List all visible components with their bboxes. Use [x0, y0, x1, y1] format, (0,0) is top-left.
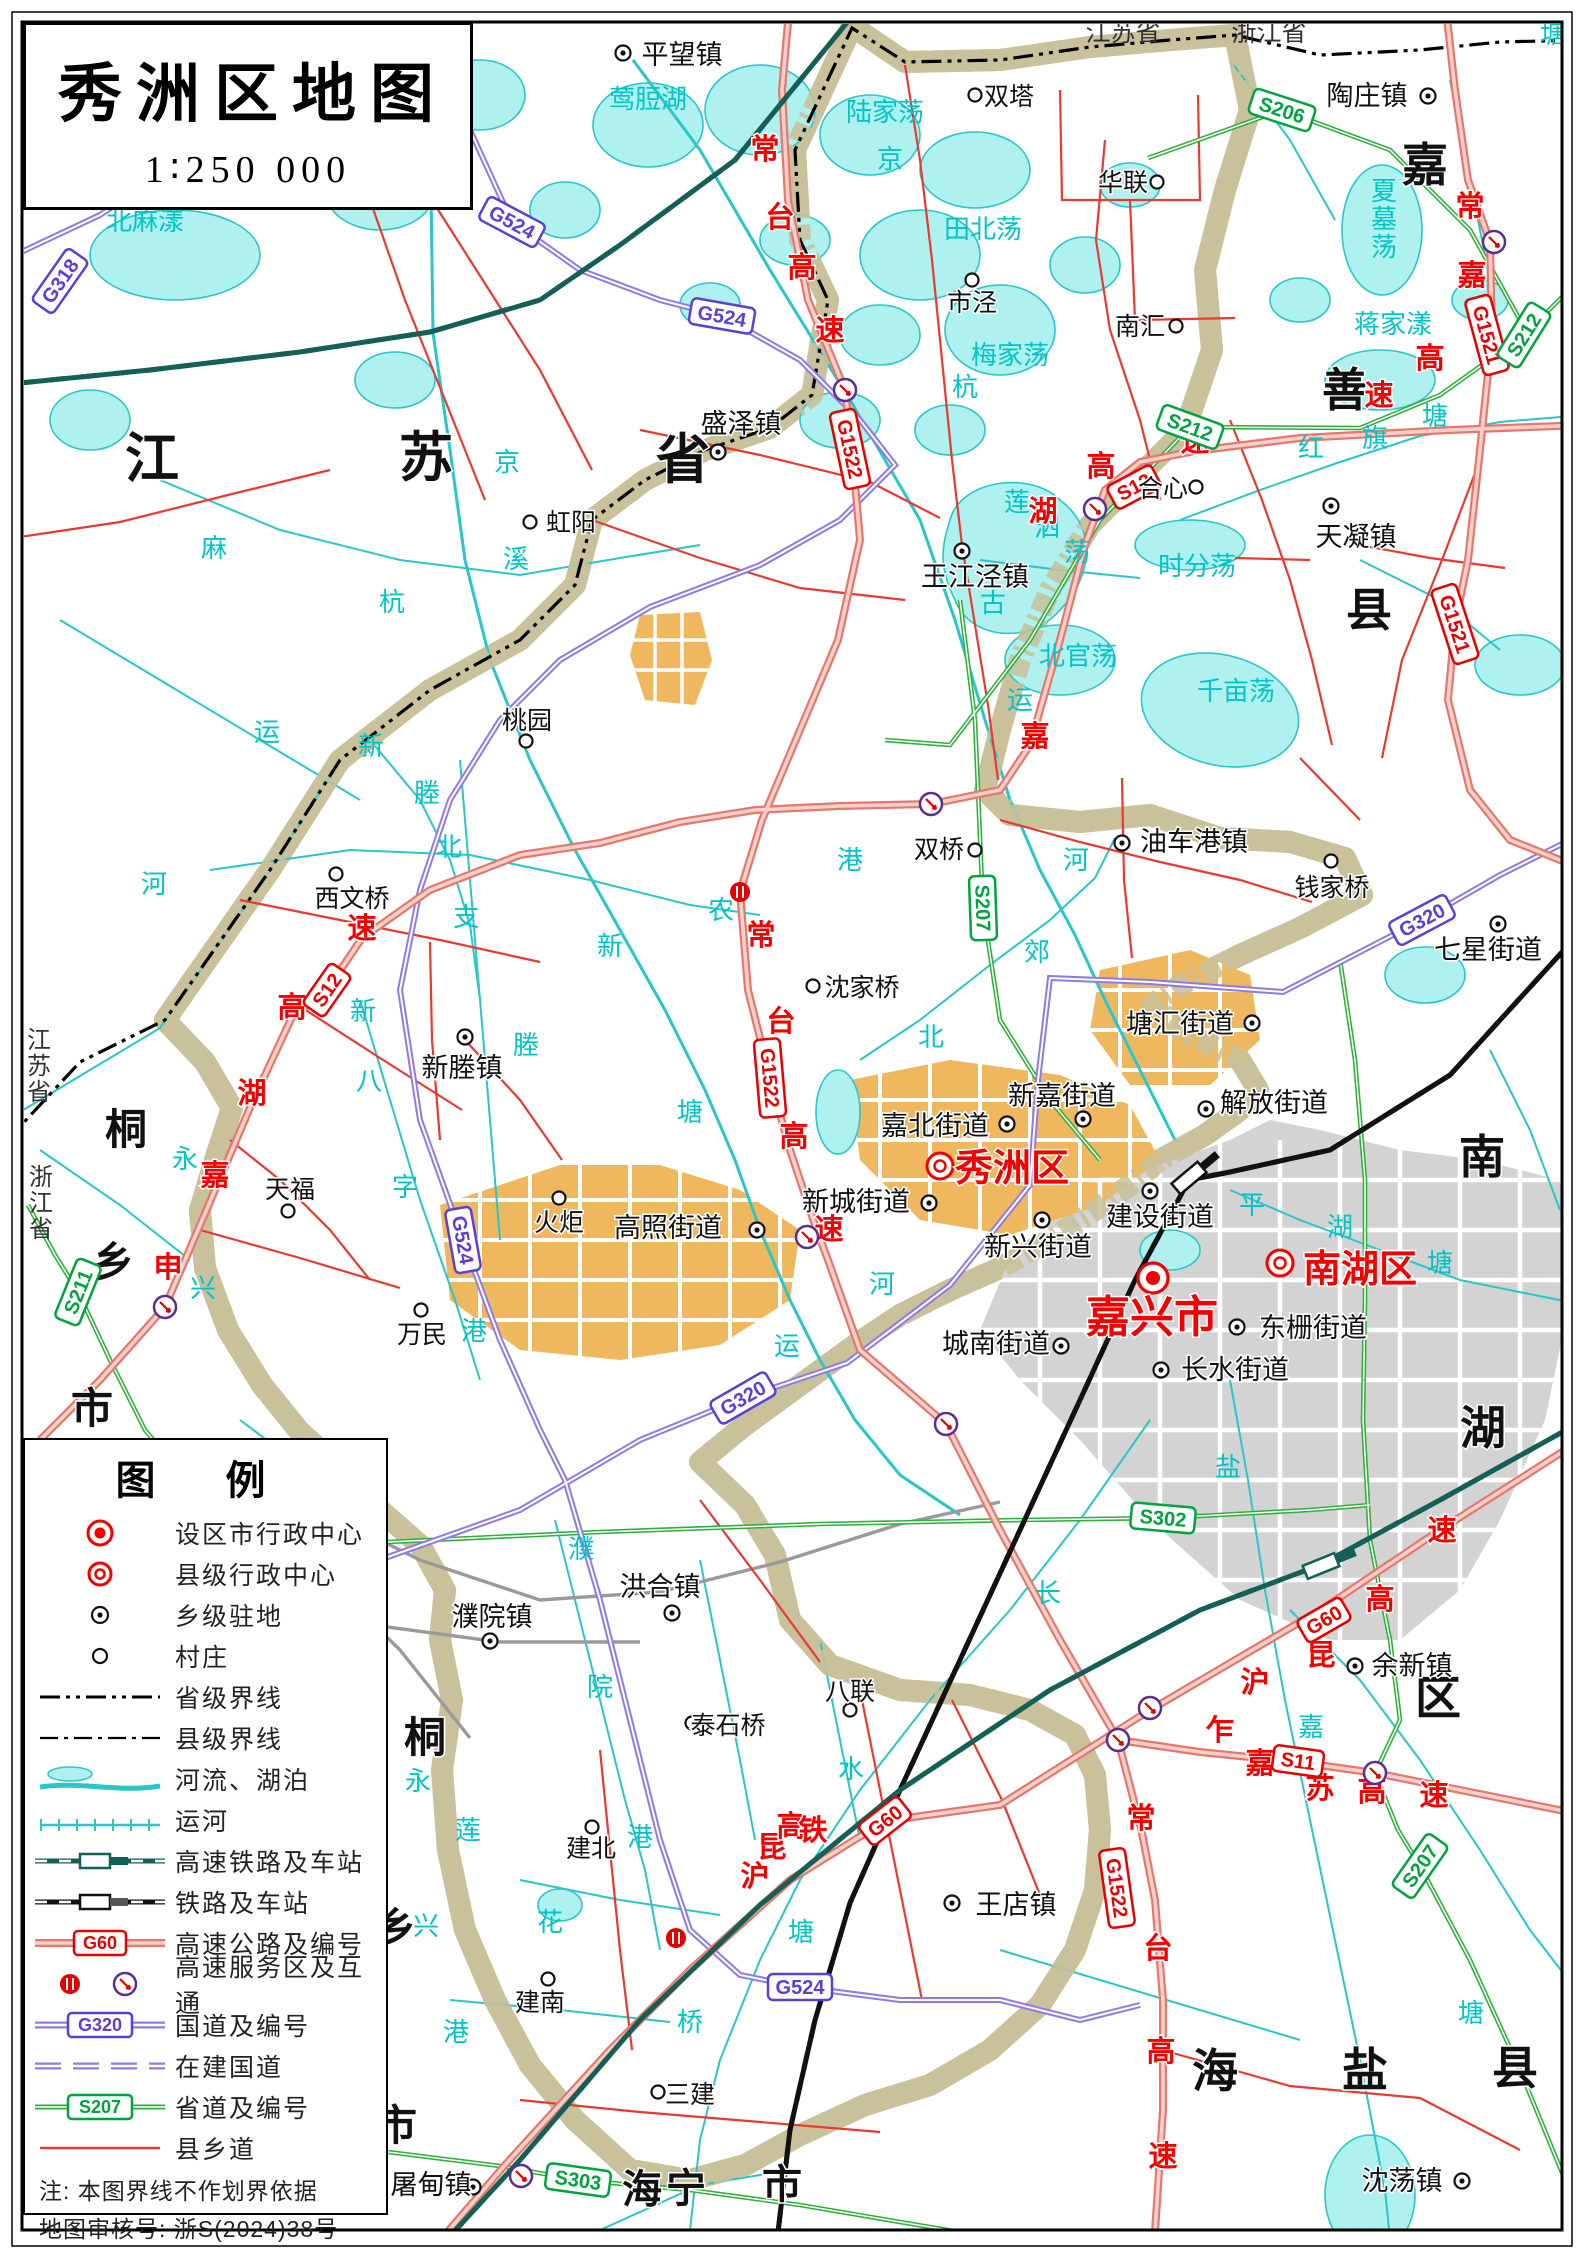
place-label-town: 天凝镇: [1316, 522, 1397, 552]
interchange-icon: [834, 379, 856, 401]
legend-label: 村庄: [175, 1638, 229, 1674]
village-marker: [966, 274, 979, 287]
place-label-town: 长水街道: [1181, 1355, 1289, 1385]
water-label: 塘: [1427, 1248, 1453, 1278]
region-label-jiangsu-province-big: 江: [125, 429, 179, 489]
place-label-village: 南汇: [1115, 313, 1165, 341]
water-label: 平: [1239, 1190, 1265, 1220]
place-label-town: 新嘉街道: [1008, 1081, 1116, 1111]
legend-label: 国道及编号: [175, 2007, 310, 2043]
legend-title: 图 例: [25, 1448, 386, 1506]
expressway-name-char: 申: [153, 1251, 182, 1284]
region-label-small: 江苏省: [27, 1027, 51, 1106]
road-badge-G1522: G1522: [1099, 1848, 1136, 1929]
place-label-village: 建南: [515, 1989, 565, 2017]
interchange-icon: [796, 1226, 818, 1248]
water-label: 河: [869, 1269, 895, 1299]
village-marker: [969, 89, 982, 102]
town-marker: [458, 1030, 473, 1045]
place-label-village: 沈家桥: [824, 974, 899, 1002]
legend-row-town: 乡级驻地: [25, 1594, 386, 1635]
region-label-tongxiang-city-n: 市: [71, 1386, 113, 1433]
road-badge-S11: S11: [1271, 1745, 1324, 1778]
town-marker: [922, 1196, 937, 1211]
place-label-town: 新塍镇: [422, 1053, 503, 1083]
legend-rows: 设区市行政中心县级行政中心乡级驻地村庄省级界线县级界线河流、湖泊运河高速铁路及车…: [25, 1512, 386, 2168]
place-label-town: 东栅街道: [1259, 1313, 1367, 1343]
town-marker: [1035, 1213, 1050, 1228]
water-label: 时分荡: [1158, 551, 1236, 581]
village-marker: [542, 1973, 555, 1986]
road-badge-G1522: G1522: [754, 1038, 787, 1118]
legend-symbol-croad: [25, 2131, 175, 2165]
water-label: 塘: [1422, 401, 1448, 431]
road-badge-S12: S12: [302, 962, 352, 1018]
legend-note: 注: 本图界线不作划界依据: [39, 2172, 386, 2206]
legend-note: 地图审核号: 浙S(2024)38号: [39, 2210, 386, 2244]
water-label: 港: [443, 2017, 469, 2047]
town-marker: [1154, 1363, 1169, 1378]
place-label-town: 塘汇街道: [1126, 1009, 1234, 1039]
place-label-town: 平望镇: [642, 40, 723, 70]
region-label-small: 浙江省: [29, 1164, 53, 1243]
place-label-town: 新城街道: [802, 1187, 910, 1217]
town-marker: [750, 1223, 765, 1238]
legend-symbol-canal: [25, 1803, 175, 1837]
expressway-name-char: 速: [815, 314, 844, 347]
expressway-name-char: 嘉: [1020, 720, 1049, 753]
expressway-name-char: 速: [347, 912, 376, 945]
village-marker: [1325, 855, 1338, 868]
place-label-village: 华联: [1098, 169, 1148, 197]
road-badge-S212: S212: [1496, 301, 1552, 369]
county-marker: [1267, 1250, 1293, 1276]
water-label: 院: [587, 1672, 613, 1702]
region-label-tongxiang-city-s: 桐: [404, 1715, 446, 1762]
expressway-name-char: 乍: [1205, 1714, 1234, 1747]
region-label-jiangsu-province-big: 苏: [399, 428, 453, 488]
place-label-county: 南湖区: [1303, 1249, 1417, 1291]
road-badge-S207: S207: [1391, 1832, 1449, 1899]
village-marker: [1170, 320, 1183, 333]
legend-label: 乡级驻地: [175, 1597, 283, 1633]
region-label-haining-city: 市: [762, 2162, 802, 2207]
place-label-town: 洪合镇: [620, 1572, 701, 1602]
water-label: 塘: [788, 1917, 814, 1947]
water-label: 北: [918, 1022, 944, 1052]
place-label-village: 桃园: [502, 707, 552, 735]
legend-row-village: 村庄: [25, 1635, 386, 1676]
water-label: 千亩荡: [1197, 676, 1275, 706]
legend-symbol-nbuild: [25, 2049, 175, 2083]
legend-label: 省级界线: [175, 1679, 283, 1715]
water-label: 莲: [455, 1815, 481, 1845]
title-panel: 秀洲区地图 1∶250 000: [23, 22, 473, 210]
road-badge-G1521: G1521: [1431, 583, 1480, 665]
water-label: 嘉: [1298, 1712, 1324, 1742]
water-label: 濮: [568, 1534, 594, 1564]
road-badge-G524: G524: [688, 298, 756, 335]
water-label: 莺脰湖: [609, 84, 687, 114]
water-label: 河: [1063, 845, 1089, 875]
expressway-name-char: 铁: [798, 1814, 827, 1847]
water-label: 新: [350, 996, 376, 1026]
map-title: 秀洲区地图: [36, 43, 470, 135]
legend-symbol-hsr: [25, 1844, 175, 1878]
svg-text:G60: G60: [83, 1933, 117, 1953]
region-label-haiyan-county: 盐: [1342, 2045, 1388, 2096]
expressway-name-char: 常: [746, 919, 775, 952]
region-label-jiashan-county: 县: [1346, 585, 1392, 636]
expressway-name-char: 高: [779, 1120, 808, 1153]
region-label-tongxiang-city-n: 桐: [105, 1107, 147, 1154]
town-marker: [1421, 89, 1436, 104]
expressway-name-char: 常: [1455, 190, 1484, 223]
legend-symbol-town: [25, 1598, 175, 1632]
expressway-name-char: 台: [765, 200, 794, 234]
place-label-town: 王江泾镇: [921, 562, 1029, 592]
town-marker: [1115, 836, 1130, 851]
road-badge-G318: G318: [31, 247, 89, 314]
service-area-icon: [666, 1928, 686, 1948]
village-marker: [969, 844, 982, 857]
region-label-nanhu-district: 南: [1459, 1132, 1505, 1183]
svg-text:G320: G320: [78, 2015, 122, 2035]
place-label-town: 盛泽镇: [701, 409, 782, 439]
water-label: 塍: [414, 778, 440, 808]
place-label-village: 建北: [566, 1835, 616, 1863]
village-marker: [553, 1192, 566, 1205]
road-badge-S207: S207: [969, 876, 997, 941]
legend-label: 运河: [175, 1802, 229, 1838]
village-marker: [1151, 176, 1164, 189]
town-marker: [1324, 499, 1339, 514]
interchange-icon: [1139, 1697, 1161, 1719]
legend-symbol-rail: [25, 1885, 175, 1919]
legend-row-rail: 铁路及车站: [25, 1881, 386, 1922]
water-label: 郊: [1024, 937, 1050, 967]
water-label: 杭: [952, 372, 978, 402]
expressway-name-char: 速: [1364, 379, 1393, 412]
svg-text:S207: S207: [970, 884, 994, 931]
town-marker: [1491, 917, 1506, 932]
town-marker: [665, 1606, 680, 1621]
expressway-name-char: 速: [1148, 2140, 1177, 2173]
place-label-town: 濮院镇: [452, 1602, 533, 1632]
expressway-name-char: 台: [766, 1004, 795, 1038]
legend-symbol-county: [25, 1557, 175, 1591]
water-label: 盐: [1215, 1452, 1241, 1482]
legend-row-service: 高速服务区及互通: [25, 1963, 386, 2004]
legend-symbol-provline: [25, 1680, 175, 1714]
water-label: 梅家荡: [971, 340, 1049, 370]
place-label-town: 解放街道: [1220, 1088, 1328, 1118]
water-label: 运: [254, 717, 280, 747]
water-label: 陆家荡: [846, 97, 924, 127]
legend-label: 县级行政中心: [175, 1556, 337, 1592]
place-label-city: 嘉兴市: [1086, 1293, 1218, 1342]
village-marker: [652, 2086, 665, 2099]
water-label: 红: [1298, 433, 1324, 463]
place-label-town: 高照街道: [614, 1213, 722, 1243]
region-label-jiashan-county: 善: [1322, 365, 1368, 416]
legend-label: 设区市行政中心: [175, 1515, 364, 1551]
expressway-name-char: 速: [814, 1213, 843, 1246]
road-badge-S206: S206: [1248, 88, 1317, 133]
water-label: 永: [405, 1766, 431, 1796]
town-marker: [616, 46, 631, 61]
expressway-name-char: 昆: [1306, 1640, 1335, 1672]
road-badge-S302: S302: [1130, 1502, 1196, 1533]
town-marker: [1076, 1112, 1091, 1127]
water-label: 塘: [677, 1097, 703, 1127]
expressway-name-char: 湖: [237, 1077, 266, 1110]
legend-row-provline: 省级界线: [25, 1676, 386, 1717]
water-label: 兴: [190, 1273, 216, 1303]
legend-notes: 注: 本图界线不作划界依据地图审核号: 浙S(2024)38号: [25, 2172, 386, 2244]
legend-row-canal: 运河: [25, 1799, 386, 1840]
place-label-town: 七星街道: [1434, 935, 1542, 965]
place-label-village: 八联: [825, 1678, 875, 1706]
village-marker: [330, 868, 343, 881]
water-label: 花: [537, 1907, 563, 1937]
expressway-name-char: 高: [1365, 1583, 1394, 1616]
water-label: 北官荡: [1039, 641, 1117, 671]
legend-symbol-village: [25, 1639, 175, 1673]
expressway-name-char: 嘉: [1245, 1747, 1274, 1780]
water-label: 农: [708, 895, 734, 925]
region-label-haining-city: 海: [622, 2167, 662, 2212]
town-marker: [1199, 1102, 1214, 1117]
water-label: 八: [356, 1066, 382, 1096]
map-page: 江苏省嘉善县南湖区桐乡市桐乡市海宁市海盐县江苏省浙江省江苏省浙江省北麻漾莺脰湖陆…: [0, 0, 1584, 2258]
interchange-icon: [920, 793, 942, 815]
place-label-town: 城南街道: [942, 1329, 1050, 1359]
town-marker: [483, 1634, 498, 1649]
expressway-name-char: 台: [1143, 1931, 1172, 1965]
city-marker: [1138, 1263, 1168, 1293]
svg-text:S207: S207: [79, 2097, 121, 2117]
place-label-village: 西文桥: [314, 885, 389, 913]
place-label-village: 合心: [1138, 475, 1188, 503]
legend-symbol-service: [25, 1967, 175, 2001]
village-marker: [586, 1821, 599, 1834]
expressway-name-char: 高: [787, 251, 816, 284]
place-label-town: 屠甸镇: [391, 2170, 472, 2200]
place-label-village: 万民: [397, 1321, 447, 1349]
water-label: 湖: [1327, 1212, 1353, 1242]
expressway-name-char: 嘉: [200, 1159, 229, 1192]
water-label: 港: [627, 1822, 653, 1852]
legend-label: 省道及编号: [175, 2089, 310, 2125]
water-label: 旗: [1362, 423, 1388, 453]
expressway-name-char: 高: [1086, 450, 1115, 483]
water-label: 桥: [677, 2007, 703, 2037]
interchange-icon: [1483, 231, 1505, 253]
water-label: 蒋家漾: [1354, 309, 1432, 339]
legend-row-croad: 县乡道: [25, 2127, 386, 2168]
place-label-town: 新兴街道: [984, 1232, 1092, 1262]
legend-label: 铁路及车站: [175, 1884, 310, 1920]
interchange-icon: [154, 1296, 176, 1318]
water-label: 莲: [1004, 487, 1030, 517]
interchange-icon: [510, 2165, 532, 2187]
village-marker: [520, 735, 533, 748]
water-label: 夏墓荡: [1371, 176, 1397, 262]
town-marker: [1245, 1016, 1260, 1031]
legend-label: 河流、湖泊: [175, 1761, 310, 1797]
expressway-name-char: 常: [750, 133, 779, 166]
village-marker: [524, 516, 537, 529]
region-label-jiangsu-province-big: 省: [656, 430, 710, 490]
region-label-haiyan-county: 海: [1192, 2046, 1238, 2097]
water-label: 北: [436, 832, 462, 862]
place-label-village: 市泾: [947, 289, 997, 317]
place-label-town: 嘉北街道: [881, 1111, 989, 1141]
region-label-haining-city: 宁: [666, 2166, 706, 2211]
place-label-town: 建设街道: [1106, 1202, 1214, 1232]
legend-row-county: 县级行政中心: [25, 1553, 386, 1594]
service-area-icon: [730, 882, 750, 902]
town-marker: [1348, 1659, 1363, 1674]
town-marker: [711, 445, 726, 460]
water-label: 字: [392, 1172, 418, 1202]
place-label-village: 钱家桥: [1294, 874, 1369, 902]
legend-label: 县乡道: [175, 2130, 256, 2166]
legend-symbol-proad: S207: [25, 2090, 175, 2124]
place-label-village: 双塔: [984, 83, 1034, 111]
place-label-village: 天福: [265, 1176, 315, 1204]
legend-row-water: 河流、湖泊: [25, 1758, 386, 1799]
legend-symbol-water: [25, 1762, 175, 1796]
village-marker: [807, 980, 820, 993]
water-label: 塘: [1458, 1998, 1484, 2028]
town-marker: [1455, 2174, 1470, 2189]
map-scale: 1∶250 000: [26, 147, 470, 192]
water-label: 京: [494, 447, 520, 477]
town-marker: [945, 1896, 960, 1911]
water-label: 永: [172, 1144, 198, 1174]
water-label: 支: [453, 902, 479, 932]
region-label-haiyan-county: 县: [1492, 2043, 1538, 2094]
legend-label: 在建国道: [175, 2048, 283, 2084]
road-badge-S303: S303: [545, 2163, 612, 2198]
water-label: 溪: [503, 544, 529, 574]
urban-orange-wangjiangjing: [630, 612, 712, 705]
legend-symbol-hwy: G60: [25, 1926, 175, 1960]
svg-text:S302: S302: [1139, 1506, 1187, 1532]
water-label: 运: [1007, 685, 1033, 715]
village-marker: [1190, 481, 1203, 494]
place-label-town: 油车港镇: [1140, 827, 1248, 857]
village-marker: [415, 1304, 428, 1317]
legend-row-countyline: 县级界线: [25, 1717, 386, 1758]
expressway-name-char: 常: [1126, 1802, 1155, 1835]
place-label-village: 泰石桥: [690, 1712, 765, 1740]
region-label-nanhu-district: 湖: [1460, 1403, 1506, 1454]
village-marker: [282, 1205, 295, 1218]
place-label-town: 王店镇: [976, 1890, 1057, 1920]
legend-symbol-city: [25, 1516, 175, 1550]
water-label: 塍: [513, 1030, 539, 1060]
legend-symbol-countyline: [25, 1721, 175, 1755]
water-label: 兴: [413, 1911, 439, 1941]
water-label: 新: [358, 731, 384, 761]
expressway-name-char: 高: [1146, 2035, 1175, 2068]
place-label-village: 双桥: [914, 836, 964, 864]
region-label-tongxiang-city-n: 乡: [92, 1241, 134, 1287]
water-label: 京: [877, 144, 903, 174]
interchange-icon: [935, 1413, 957, 1435]
water-label: 河: [141, 869, 167, 899]
water-label: 运: [774, 1331, 800, 1361]
town-marker: [1054, 1339, 1069, 1354]
place-label-town: 沈荡镇: [1362, 2166, 1443, 2196]
water-label: 北麻漾: [106, 206, 184, 236]
road-badge-G60: G60: [857, 1795, 912, 1846]
legend-row-nbuild: 在建国道: [25, 2045, 386, 2086]
interchange-icon: [1364, 1762, 1386, 1784]
town-marker: [955, 544, 970, 559]
water-label: 水: [838, 1754, 864, 1784]
water-label: 长: [1035, 1578, 1061, 1608]
place-label-town: 余新镇: [1372, 1651, 1453, 1681]
svg-text:G524: G524: [776, 1977, 826, 1999]
interchange-icon: [1107, 1729, 1129, 1751]
town-marker: [1143, 1184, 1158, 1199]
water-label: 麻: [201, 533, 227, 563]
road-badge-G524: G524: [768, 1974, 832, 2000]
legend-panel: 图 例 设区市行政中心县级行政中心乡级驻地村庄省级界线县级界线河流、湖泊运河高速…: [23, 1438, 388, 2215]
town-marker: [1230, 1320, 1245, 1335]
water-label: 古: [980, 588, 1006, 618]
expressway-name-char: 速: [1419, 1779, 1448, 1812]
water-label: 新: [597, 931, 623, 961]
expressway-name-char: 湖: [1028, 495, 1057, 528]
water-label: 港: [461, 1316, 487, 1346]
legend-row-hsr: 高速铁路及车站: [25, 1840, 386, 1881]
place-label-town: 陶庄镇: [1327, 81, 1408, 111]
legend-symbol-nroad: G320: [25, 2008, 175, 2042]
place-label-village: 火炬: [534, 1209, 584, 1237]
water-label: 荡: [1064, 537, 1090, 567]
place-label-village: 三建: [665, 2081, 715, 2109]
water-label: 杭: [379, 587, 405, 617]
place-label-village: 虹阳: [546, 509, 596, 537]
legend-row-city: 设区市行政中心: [25, 1512, 386, 1553]
expressway-name-char: 沪: [1240, 1666, 1269, 1699]
legend-row-proad: S207省道及编号: [25, 2086, 386, 2127]
place-label-county: 秀洲区: [954, 1148, 1069, 1190]
legend-label: 县级界线: [175, 1720, 283, 1756]
expressway-name-char: 高: [1415, 342, 1444, 375]
region-label-jiashan-county: 嘉: [1402, 140, 1448, 191]
town-marker: [1000, 1117, 1015, 1132]
legend-label: 高速铁路及车站: [175, 1843, 364, 1879]
expressway-name-char: 速: [1427, 1514, 1456, 1547]
water-label: 田北荡: [944, 214, 1022, 244]
expressway-name-char: 嘉: [1457, 259, 1486, 292]
county-marker: [927, 1153, 953, 1179]
interchange-icon: [1084, 498, 1106, 520]
expressway-name-char: 沪: [740, 1860, 769, 1893]
expressway-name-char: 高: [277, 991, 306, 1024]
water-label: 港: [837, 845, 863, 875]
